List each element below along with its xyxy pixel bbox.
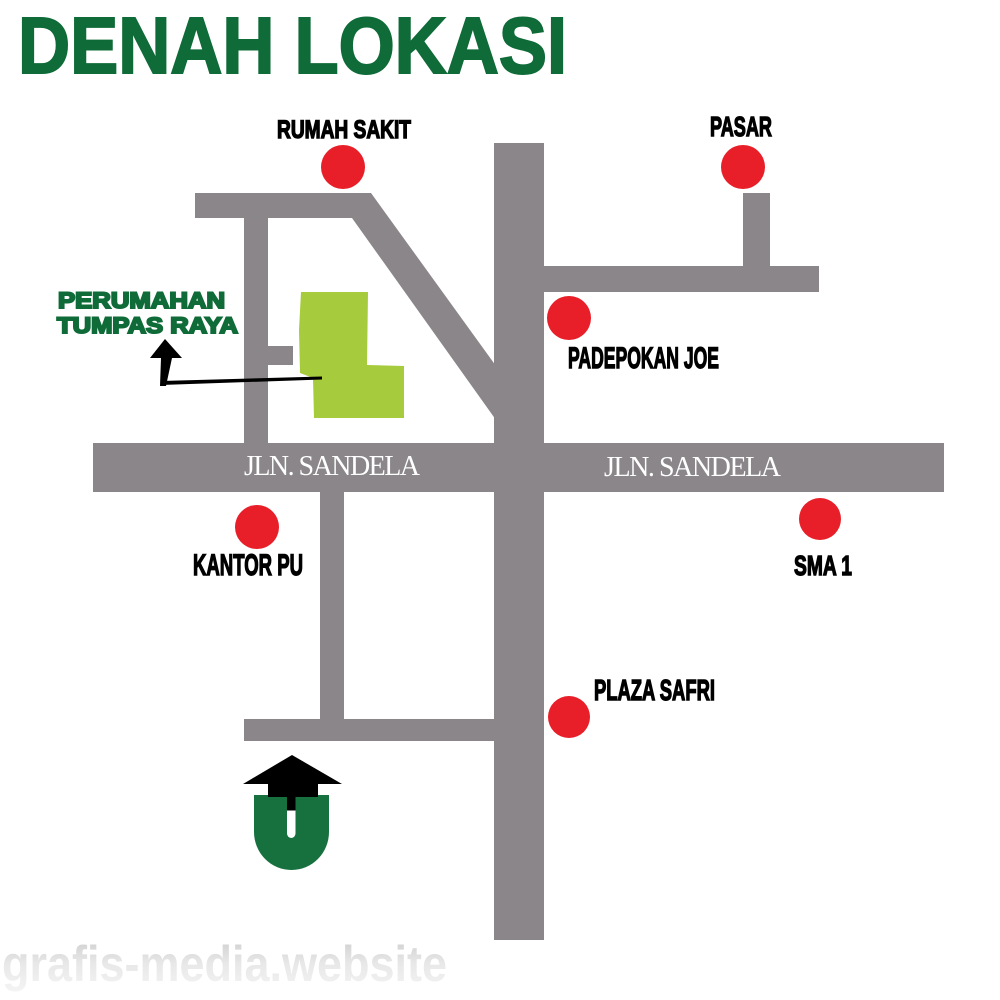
svg-text:RUMAH SAKIT: RUMAH SAKIT bbox=[277, 116, 411, 144]
svg-text:PADEPOKAN JOE: PADEPOKAN JOE bbox=[568, 342, 719, 375]
svg-text:grafis-media.website: grafis-media.website bbox=[2, 936, 447, 992]
svg-text:TUMPAS RAYA: TUMPAS RAYA bbox=[57, 313, 238, 338]
svg-text:PLAZA SAFRI: PLAZA SAFRI bbox=[594, 675, 715, 707]
svg-text:PERUMAHAN: PERUMAHAN bbox=[58, 288, 225, 313]
svg-text:SMA 1: SMA 1 bbox=[794, 550, 852, 581]
svg-text:DENAH LOKASI: DENAH LOKASI bbox=[18, 1, 567, 90]
svg-text:JLN. SANDELA: JLN. SANDELA bbox=[244, 451, 421, 482]
svg-text:PASAR: PASAR bbox=[710, 111, 772, 142]
svg-text:KANTOR PU: KANTOR PU bbox=[193, 549, 303, 582]
svg-text:JLN. SANDELA: JLN. SANDELA bbox=[604, 452, 782, 483]
